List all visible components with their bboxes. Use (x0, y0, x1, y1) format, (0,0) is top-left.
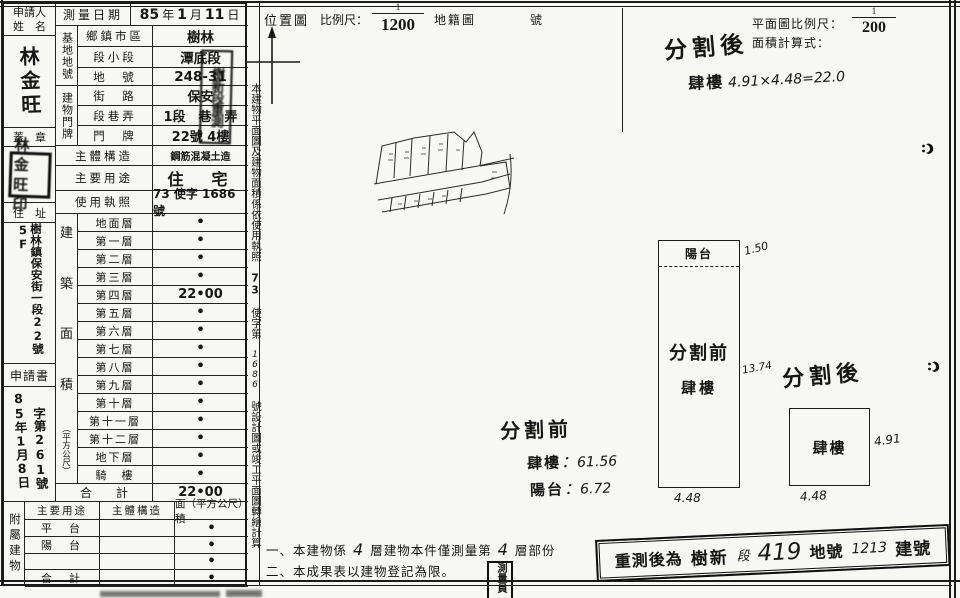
land-row-value: 樹林 (153, 26, 248, 46)
land-group-label-text: 基地地號 (59, 32, 75, 80)
stamp-hand-duan: 段 (736, 545, 750, 565)
application-label-text: 申請書 (10, 367, 49, 384)
floor-row: 第一層 • (78, 232, 248, 250)
side-note-printed-3: 號設計圖或竣工平面圖轉繪計算 (250, 401, 261, 548)
annex-row: 陽 台 • (25, 537, 248, 554)
survey-year-unit: 年 (162, 6, 174, 23)
total-label-text: 合 計 (80, 484, 128, 501)
address-label: 住 址 (4, 203, 56, 223)
note-line-1: 一、本建物係 4 層建物本件僅測量第 4 層部份 (266, 540, 555, 559)
land-row: 鄉鎮市區 樹林 (78, 26, 248, 47)
annex-header-area: 面（平方公尺）積 (175, 502, 248, 519)
note1-printed-b: 層建物本件僅測量第 (370, 540, 492, 559)
before-area-balcony-line: 陽台：6.72 (530, 474, 612, 501)
survey-day-unit: 日 (227, 6, 239, 23)
annex-row-label: 陽 台 (25, 537, 100, 553)
land-row-label: 鄉鎮市區 (78, 26, 153, 46)
before-area-balcony-value: 6.72 (580, 481, 612, 498)
area-char-3: 面 (60, 323, 73, 342)
application-no: 字第261號 (28, 387, 51, 490)
border-right-outer (954, 0, 956, 598)
usage-label: 主要用途 (56, 166, 153, 191)
application-label: 申請書 (4, 364, 56, 387)
annex-row-structure (100, 520, 175, 536)
punch-mark (926, 360, 942, 374)
license-label-text: 使用執照 (75, 194, 133, 210)
border-right-inner (949, 0, 951, 598)
side-note-hand-73: 73 (249, 273, 261, 297)
door-row-label: 門 牌 (78, 126, 153, 145)
door-group-label: 建物門牌 (56, 86, 78, 146)
before-plan-floor: 肆樓 (659, 377, 739, 398)
annex-row: • (25, 554, 248, 570)
door-row-label: 街 路 (78, 86, 153, 105)
plan-header-divider (622, 8, 623, 132)
annex-group-label: 附屬建物 (4, 502, 25, 586)
annex-row-value: • (175, 554, 248, 569)
survey-day-hand: 11 (205, 7, 224, 23)
applicant-seal: 林金旺印 (8, 151, 52, 198)
annex-header: 主要用途 主體構造 面（平方公尺）積 (25, 502, 248, 520)
survey-month-unit: 月 (190, 6, 202, 23)
applicant-name-cell: 林金旺 (4, 36, 56, 128)
plan-scale-fraction: 1 200 (852, 7, 896, 37)
floor-row-label: 第五層 (78, 304, 153, 321)
stamp-hand-1213: 1213 (851, 540, 887, 558)
floor-row: 第二層 • (78, 250, 248, 268)
application-number-cell: 85年1月8日 字第261號 (4, 387, 56, 502)
floor-row-label: 第十層 (78, 394, 153, 411)
address-cell: 樹林鎮保安街一段22號5F (4, 223, 56, 364)
balcony-label: 陽台 (685, 245, 713, 262)
annex-row-value: • (175, 520, 248, 536)
license-label: 使用執照 (56, 191, 153, 214)
after-dim-bottom: 4.48 (800, 488, 828, 504)
punch-mark (920, 142, 936, 156)
stamp-hand-419: 419 (757, 539, 802, 567)
annex-row: 合 計 • (25, 570, 248, 587)
structure-label: 主體構造 (56, 146, 153, 166)
area-formula-label: 面積計算式： (752, 34, 830, 51)
annex-row-label: 平 台 (25, 520, 100, 536)
floor-row-value: • (153, 304, 248, 321)
after-plan-title: 分割後 (781, 355, 864, 394)
left-form: 申請人 姓 名 林金旺 蓋 章 林金旺印 住 址 樹林鎮保安街一段22號5F 申… (3, 3, 247, 585)
remeasure-stamp: 重測後為 樹新 段 419 地號 1213 建號 (595, 524, 951, 582)
plan-scale-num: 1 (872, 7, 877, 16)
stamp-printed-2: 樹新 (690, 542, 729, 569)
applicant-address: 樹林鎮保安街一段22號5F (15, 223, 43, 363)
floor-row-label: 第七層 (78, 340, 153, 357)
floor-row-value: • (153, 430, 248, 447)
floor-row: 第五層 • (78, 304, 248, 322)
floor-row-label: 第六層 (78, 322, 153, 339)
side-note-printed-2: 使字第 (250, 308, 261, 340)
surveyor-box: 測量員 (487, 561, 513, 598)
before-area-balcony-sep: ： (564, 479, 581, 499)
before-dim-top: 1.50 (743, 239, 770, 258)
cadastre-label: 地籍圖 (434, 11, 476, 28)
floor-row: 第十一層 • (78, 412, 248, 430)
before-plan-title: 分割前 (659, 339, 739, 365)
before-area-floor-sep: ： (561, 452, 578, 472)
door-group-label-text: 建物門牌 (59, 92, 75, 140)
floor-row-value: • (153, 340, 248, 357)
survey-date-value: 85 年 1 月 11 日 (131, 4, 248, 26)
before-area-title: 分割前 (500, 413, 573, 444)
floor-row-value: • (153, 322, 248, 339)
applicant-name: 林金旺 (14, 45, 45, 118)
applicant-label-line2: 姓 名 (13, 20, 46, 34)
fraction-bar (372, 13, 424, 14)
building-area-label: 建 築 面 積 （平方公尺） (56, 214, 78, 484)
location-scale-den: 1200 (381, 15, 415, 35)
annex-row-structure (100, 554, 175, 569)
before-plan-rect: 陽台 分割前 肆樓 (658, 240, 740, 488)
annex-row-structure (100, 570, 175, 586)
applicant-label-line1: 申請人 (13, 6, 46, 20)
note-line-2: 二、本成果表以建物登記為限。 (266, 561, 455, 580)
stamp-printed-4: 建號 (894, 533, 931, 560)
floor-row: 第七層 • (78, 340, 248, 358)
location-scale-label: 比例尺： (320, 11, 368, 28)
floor-row-value: • (153, 268, 248, 285)
license-value: 73 使字 1686 號 (153, 191, 248, 214)
door-row-label: 段巷弄 (78, 106, 153, 125)
applicant-name-label: 申請人 姓 名 (4, 4, 56, 36)
survey-year-hand: 85 (140, 7, 159, 23)
floor-row: 第八層 • (78, 358, 248, 376)
floor-row-label: 第二層 (78, 250, 153, 267)
annex-row-value: • (175, 537, 248, 553)
before-dim-side: 13.74 (741, 359, 773, 376)
note1-printed-c: 層部份 (515, 540, 556, 559)
note1-printed-a: 一、本建物係 (266, 540, 347, 559)
cadastre-no-label: 號 (530, 11, 542, 28)
annex-header-structure: 主體構造 (100, 502, 175, 519)
cut-off-text-smudge (100, 591, 220, 597)
floor-row-value: • (153, 376, 248, 393)
annex-row-value: • (175, 570, 248, 586)
floor-row-label: 第九層 (78, 376, 153, 393)
floor-rows: 地面層 • 第一層 • 第二層 • 第三層 • (78, 214, 248, 484)
fraction-bar (852, 17, 896, 18)
north-arrow-icon (244, 24, 304, 110)
before-area-floor-line: 肆樓：61.56 (527, 446, 618, 473)
structure-label-text: 主體構造 (75, 148, 133, 164)
after-formula-calc: 4.91×4.48=22.0 (728, 69, 846, 91)
side-note-hand-1686: 1686 (250, 350, 260, 390)
floor-row-value: • (153, 466, 248, 483)
land-row-label: 段小段 (78, 47, 153, 67)
annex-group-label-text: 附屬建物 (6, 513, 22, 575)
location-scale-fraction: 1 1200 (372, 3, 424, 35)
annex-row-label (25, 554, 100, 569)
floor-row-label: 第十一層 (78, 412, 153, 429)
floor-row-value: • (153, 394, 248, 411)
before-area-balcony-label: 陽台 (530, 480, 565, 499)
after-division-formula: 肆樓 4.91×4.48=22.0 (687, 62, 845, 94)
survey-month-hand: 1 (177, 7, 187, 23)
after-formula-floor: 肆樓 (688, 72, 725, 93)
survey-form-page: 申請人 姓 名 林金旺 蓋 章 林金旺印 住 址 樹林鎮保安街一段22號5F 申… (0, 0, 960, 598)
stamp-printed-1: 重測後為 (614, 545, 683, 572)
usage-label-text: 主要用途 (75, 170, 133, 186)
after-plan-rect: 肆樓 (789, 408, 870, 486)
floor-row-value: • (153, 448, 248, 465)
annex-row: 平 台 • (25, 520, 248, 537)
floor-row: 第九層 • (78, 376, 248, 394)
plan-scale-den: 200 (862, 19, 886, 37)
floor-row-value: • (153, 412, 248, 429)
annex-rows: 平 台 • 陽 台 • • 合 計 (25, 520, 248, 586)
before-area-floor-label: 肆樓 (527, 453, 562, 472)
floor-row: 第十二層 • (78, 430, 248, 448)
annex-row-label: 合 計 (25, 570, 100, 586)
floor-row-label: 第八層 (78, 358, 153, 375)
area-char-4: 積 (60, 374, 73, 393)
structure-value: 鋼筋混凝土造 (153, 146, 248, 166)
plan-scale-label: 平面圖比例尺： (752, 15, 843, 32)
annex-row-structure (100, 537, 175, 553)
area-unit: （平方公尺） (61, 424, 73, 475)
structure-value-text: 鋼筋混凝土造 (171, 148, 231, 163)
floor-row-label: 地面層 (78, 214, 153, 231)
floor-row-label: 第一層 (78, 232, 153, 249)
location-scale-num: 1 (396, 3, 401, 12)
floor-row-label: 第十二層 (78, 430, 153, 447)
floor-row-value: 22•00 (153, 286, 248, 303)
annex-header-use: 主要用途 (25, 502, 100, 519)
floor-row: 第三層 • (78, 268, 248, 286)
cut-off-text-smudge (226, 590, 262, 597)
overlap-stamp: 樹新段重測 (199, 50, 233, 145)
floor-row-value: • (153, 358, 248, 375)
floor-row-label: 第四層 (78, 286, 153, 303)
survey-date-label: 測量日期 (56, 4, 131, 26)
area-char-2: 築 (60, 273, 73, 292)
note1-hand-4a: 4 (353, 540, 364, 559)
floor-row-value: • (153, 214, 248, 231)
before-plan-balcony: 陽台 (659, 241, 739, 267)
note1-hand-4b: 4 (498, 540, 509, 559)
survey-date-label-text: 測量日期 (63, 6, 123, 23)
after-plan-floor: 肆樓 (812, 437, 846, 458)
address-label-text: 住 址 (13, 205, 46, 221)
after-division-title: 分割後 (663, 24, 750, 65)
floor-row: 地下層 • (78, 448, 248, 466)
total-row-label: 合 計 (56, 484, 153, 502)
floor-row: 第四層 22•00 (78, 286, 248, 304)
floor-row: 地面層 • (78, 214, 248, 232)
land-row-label: 地 號 (78, 68, 153, 85)
floor-row-value: • (153, 232, 248, 249)
area-char-1: 建 (60, 222, 73, 241)
applicant-seal-cell: 林金旺印 (4, 147, 56, 203)
before-dim-bottom: 4.48 (674, 491, 701, 505)
surveyor-box-text: 測量員 (494, 563, 506, 593)
floor-row: 騎 樓 • (78, 466, 248, 484)
before-area-floor-value: 61.56 (577, 453, 618, 470)
cadastral-sketch (362, 126, 517, 216)
land-group-label: 基地地號 (56, 26, 78, 86)
floor-row: 第六層 • (78, 322, 248, 340)
floor-row-label: 第三層 (78, 268, 153, 285)
floor-row: 第十層 • (78, 394, 248, 412)
stamp-printed-3: 地號 (809, 538, 844, 564)
floor-row-value: • (153, 250, 248, 267)
floor-row-label: 地下層 (78, 448, 153, 465)
floor-row-label: 騎 樓 (78, 466, 153, 483)
after-dim-side: 4.91 (873, 431, 901, 449)
